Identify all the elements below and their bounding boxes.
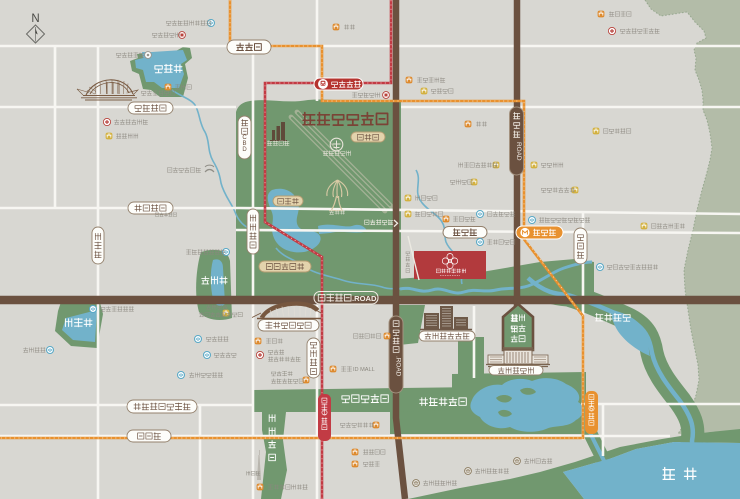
svg-text:D: D bbox=[242, 147, 247, 153]
svg-text:5: 5 bbox=[590, 407, 593, 413]
svg-text:.ROAD: .ROAD bbox=[395, 356, 402, 377]
svg-text:ROAD: ROAD bbox=[515, 142, 522, 161]
svg-text:.ROAD: .ROAD bbox=[352, 294, 377, 303]
svg-text:ID MALL: ID MALL bbox=[353, 367, 375, 373]
svg-text:N: N bbox=[31, 13, 39, 25]
svg-text:1: 1 bbox=[323, 411, 326, 417]
